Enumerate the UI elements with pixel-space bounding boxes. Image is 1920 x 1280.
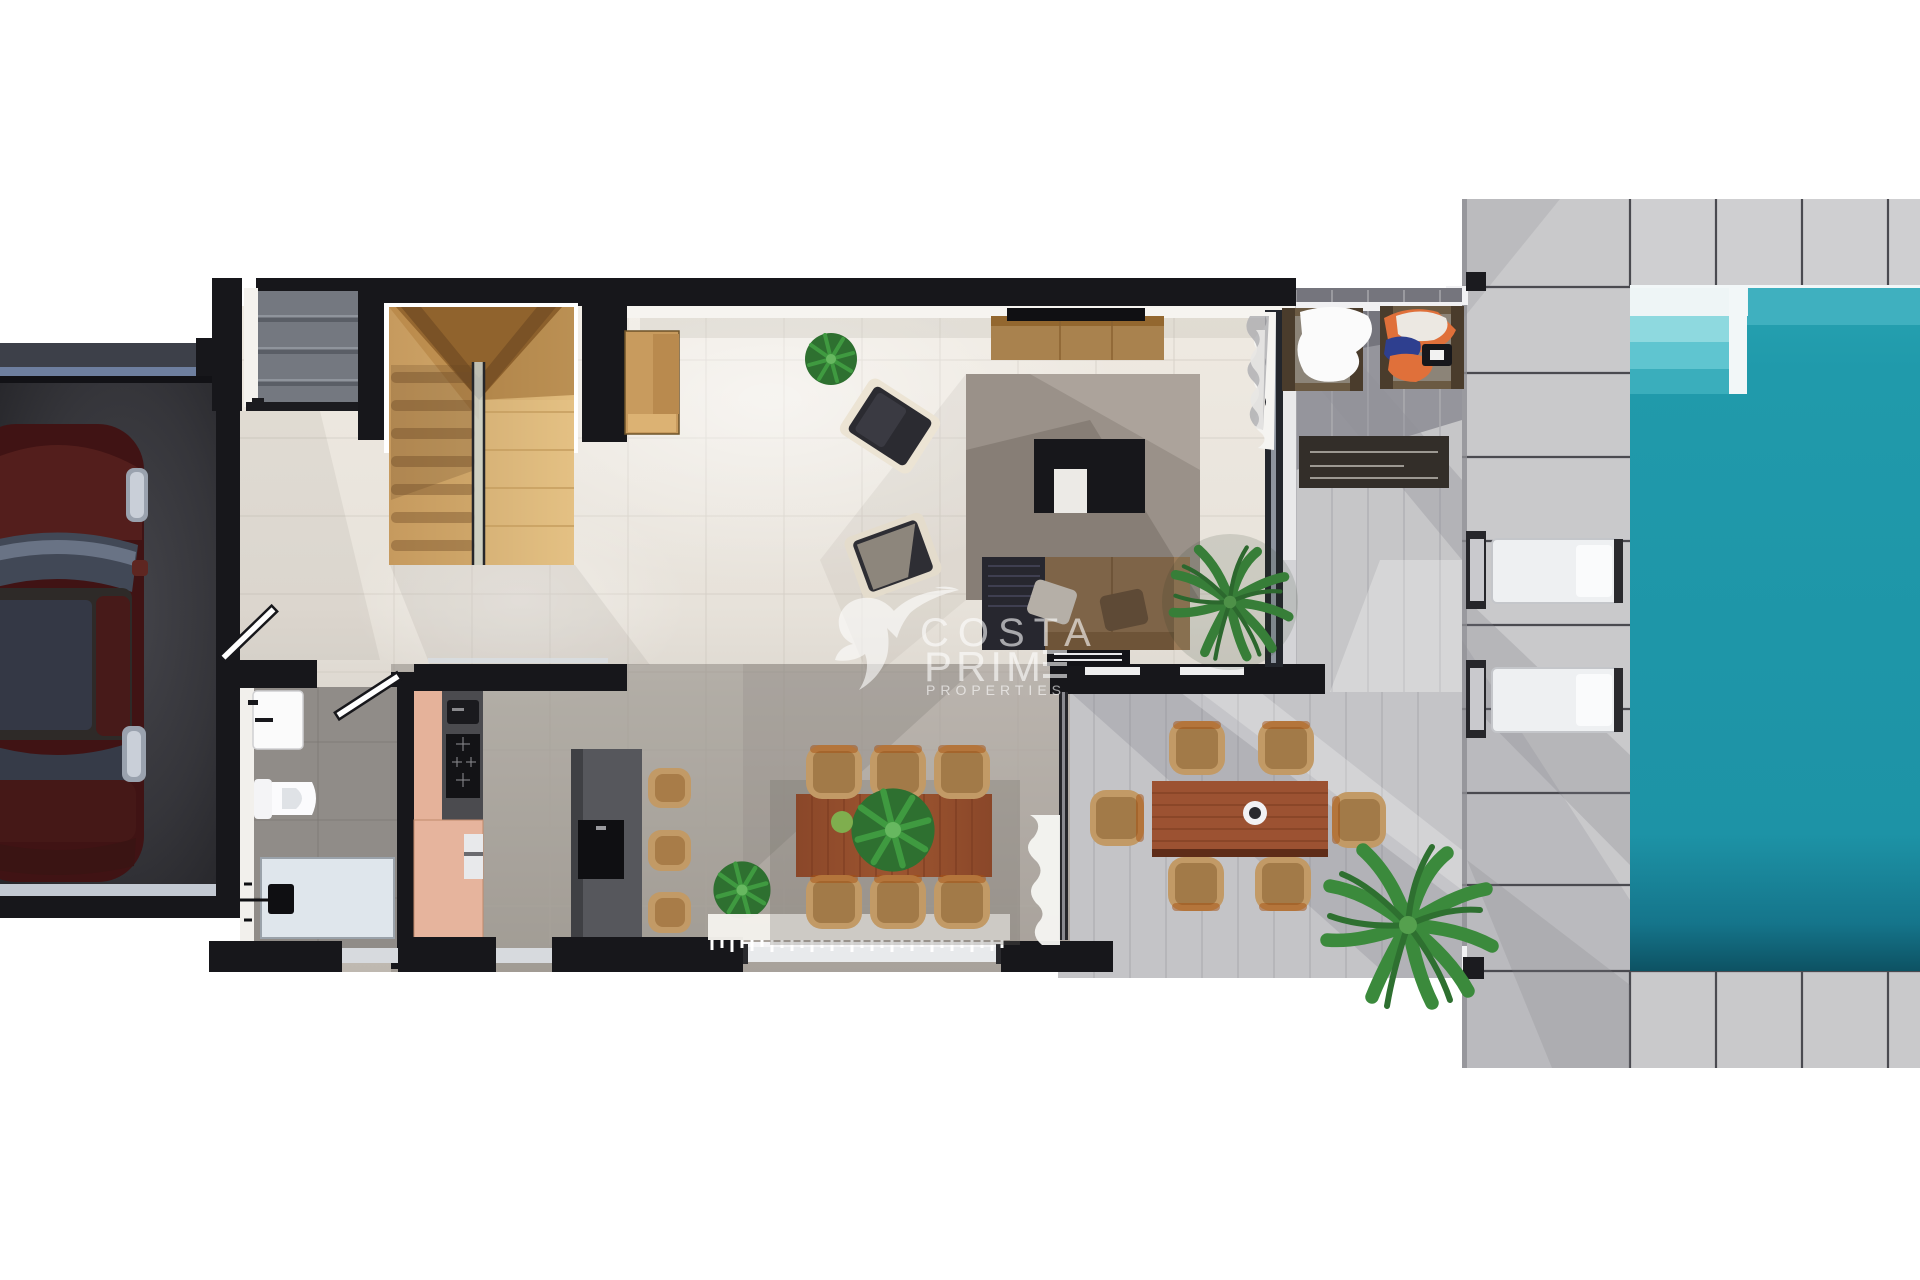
svg-text:PROPERTIES: PROPERTIES	[926, 682, 1066, 698]
